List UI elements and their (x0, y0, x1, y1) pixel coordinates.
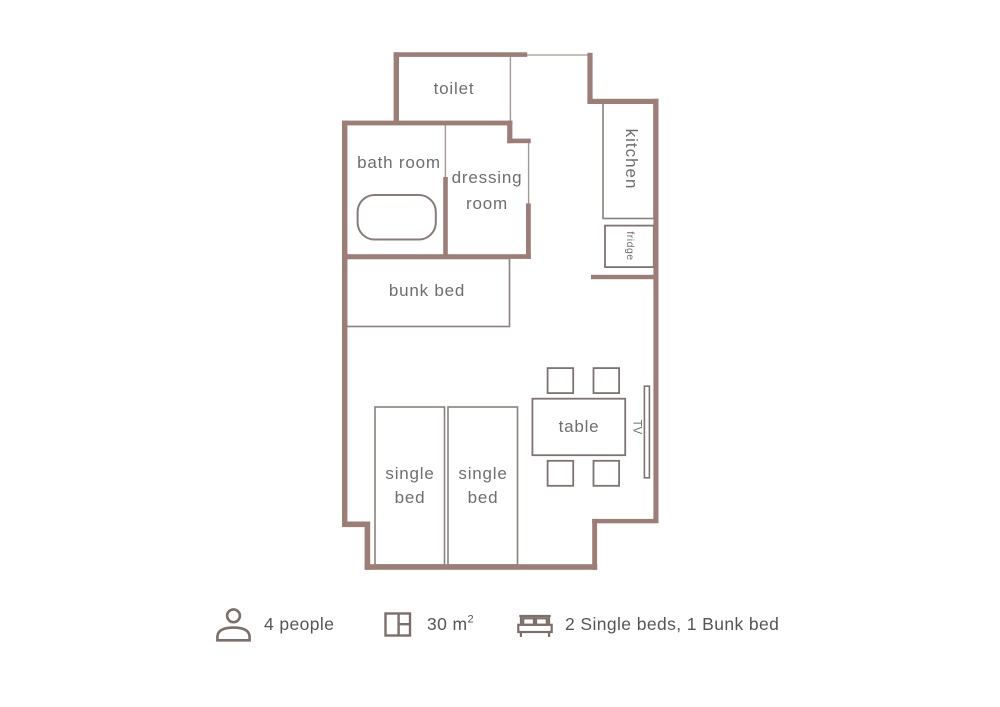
svg-text:table: table (559, 417, 600, 436)
svg-text:bath room: bath room (357, 153, 441, 172)
svg-text:bed: bed (468, 488, 499, 507)
svg-text:bunk bed: bunk bed (389, 281, 465, 300)
svg-text:single: single (385, 464, 434, 483)
svg-text:TV: TV (631, 420, 643, 435)
svg-text:fridge: fridge (624, 231, 636, 260)
svg-text:2 Single beds, 1 Bunk bed: 2 Single beds, 1 Bunk bed (565, 614, 779, 634)
svg-text:toilet: toilet (434, 79, 475, 98)
svg-text:4 people: 4 people (264, 614, 334, 634)
svg-text:30 m2: 30 m2 (427, 614, 474, 635)
svg-text:room: room (466, 194, 508, 213)
svg-text:bed: bed (395, 488, 426, 507)
svg-text:dressing: dressing (452, 168, 523, 187)
svg-text:kitchen: kitchen (622, 129, 641, 190)
svg-text:single: single (458, 464, 507, 483)
